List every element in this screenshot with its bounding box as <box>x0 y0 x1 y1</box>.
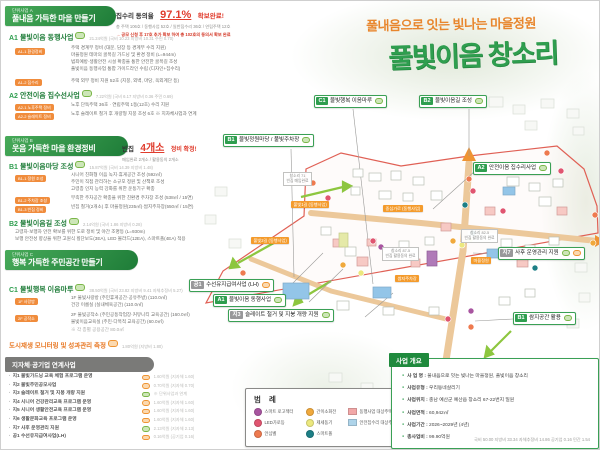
subproject-details: 1F 물빛사랑방 (주민휴게공간·공유주방) (110.0㎡) 건강 이룸실 (… <box>71 295 167 309</box>
budget-badge-icon <box>142 435 150 441</box>
project-title: 물빛이음길 조성 <box>20 221 67 228</box>
subproject-details: 부족한 주차공간 확충을 위한 친환경 주차장 조성 (538㎡ / 15면) <box>71 195 193 202</box>
monitoring-title: 도시재생 모니터링 및 성과관리 측정 <box>9 343 106 350</box>
legend-item: 동행사업 대상주택 <box>348 408 392 415</box>
linked-item: 지6 생활문화교육 프로그램 운영1.60억원 (지자체 1.60) <box>9 416 194 425</box>
project-title: 물빛이음마당 조성 <box>20 164 73 171</box>
legend-item: 안심벨 <box>254 430 276 438</box>
linked-item: 지5 시니어 생활안전교육 프로그램 운영1.60억원 (지자체 1.60) <box>9 407 194 416</box>
legend-item: LED가로등 <box>254 419 285 427</box>
section-b-title: 웃음 가득한 마을 환경정비 <box>12 144 120 153</box>
budget-badge-icon <box>142 383 150 389</box>
linked-projects-list: 지1 물빛가드닝 교육 체험 프로그램 운영1.60억원 (지자체 1.60) … <box>9 373 194 442</box>
floor-footnote: ※ 각 층별 공용공간 80.0㎡ <box>71 327 124 334</box>
project-code: C1 <box>9 287 18 294</box>
map-label-a2: A2안전이음 집수리사업 <box>473 162 551 175</box>
road-label: 풀빛2길 (동행사업) <box>251 237 289 244</box>
budget-badge-icon <box>75 284 85 291</box>
project-overview-box: 사업 개요 사 업 명풀내음으로 잇는 빛나는 마을정원, 풀빛이음 창소리 사… <box>391 358 599 449</box>
linked-projects-header: 지자체·공기업 연계사업 <box>5 357 154 372</box>
smart-pole-icon <box>306 430 314 438</box>
poster-title: 풀빛이음 창소리 <box>348 30 597 78</box>
detail-line: 빈집 철거(2개소) 후 마을정원(235㎡)·쌈지주차장(550㎡ / 15면… <box>71 204 193 211</box>
legend-box: 범 례 스마트 로고젝터 LED가로등 안심벨 간이소화전 제세동기 스마트폴 … <box>245 388 397 447</box>
budget-badge-icon <box>142 409 150 415</box>
subproject-tag: A1-2 집수리 <box>15 79 42 86</box>
detail-line: 보행 안전성 향상을 위한 고원식 횡단보도(3EA), LED 볼라드(12E… <box>15 236 186 243</box>
subproject-details: 빈집 철거(2개소) 후 마을정원(235㎡)·쌈지주차장(550㎡ / 15면… <box>71 204 193 211</box>
donghaeng-house-icon <box>348 408 357 415</box>
map-label-c1: C1물빛행복 이음마루 <box>314 95 387 108</box>
project-code: A2 <box>9 93 18 100</box>
project-c1-row: C1물빛행복 이음마루38.50억원 (국비 23.82 지방비 9.41 자체… <box>9 284 183 295</box>
subproject-tag: A2-2 슬레이트 정비 <box>15 113 54 120</box>
budget-badge-icon <box>142 392 150 398</box>
subproject-tag: 2F 공작소 <box>15 315 38 322</box>
project-code: B2 <box>9 221 18 228</box>
subproject-tag: B1-3 빈집 정비 <box>15 206 46 213</box>
facility-label: 마을정원 <box>471 257 491 264</box>
notice-suffix: 정비 확정! <box>171 147 197 153</box>
subproject-details: 노후 단독주택 36호 · 연립주택 1동(12호) 수리 지원 <box>71 102 169 109</box>
linked-item: 지7 사후 운영관리 지원2.13억원 (지자체 2.13) <box>9 425 194 434</box>
road-label: 중심가로 (동행사업) <box>383 205 423 212</box>
subproject-tag: B1-2 주차장 조성 <box>15 197 50 204</box>
section-a-tag: 단위사업 A <box>12 8 108 14</box>
notice-label: 빈집 <box>122 146 134 153</box>
overview-title: 사업 개요 <box>389 353 429 367</box>
linked-item: 지2 물빛주민공모사업0.70억원 (지자체 0.70) <box>9 382 194 391</box>
map-label-j3: 지3슬레이트 철거 및 지붕 개량 지원 <box>228 309 334 322</box>
notice-extra: → 공모 신청 후 17호 추가 확보 하여 총 102호의 동의서 확보 완료 <box>116 32 231 38</box>
badge-icon <box>564 315 572 321</box>
linked-item: 지4 시니어 건강관리교육 프로그램 운영1.60억원 (지자체 1.60) <box>9 399 194 408</box>
map-label-b1b: B1쌈지공간 활용 <box>513 312 576 325</box>
budget-badge-icon <box>142 418 150 424</box>
map-label-g1: 공1수선유지급여사업 (LH) <box>189 279 274 292</box>
section-c-tag: 단위사업 C <box>12 252 130 258</box>
safety-bell-icon <box>254 430 262 438</box>
badge-icon <box>322 312 330 318</box>
community-center-building <box>427 251 437 266</box>
vacant-note: 창소리 82-5빈집 활용동의 완료 <box>461 229 498 243</box>
linked-item: 지1 물빛가드닝 교육 체험 프로그램 운영1.60억원 (지자체 1.60) <box>9 373 194 382</box>
detail-line: 2F 물빛공작소 (주민공동작업장·커뮤니티 교육공간) (160.0㎡) <box>71 312 190 319</box>
detail-line: 주택 경계부 정비 (대문, 담장 등 경계부 수리 지원) <box>71 45 180 52</box>
section-a-title: 풀내음 가득한 마을 만들기 <box>12 14 108 23</box>
project-budget: 7.22억원 (국비 6.17 지방비 0.36 주민 0.69) <box>96 94 173 99</box>
subproject-details: 노후 슬레이트 철거 후 개량형 지붕 조성 6호 ※ 지자체사업과 연계 <box>71 111 197 118</box>
badge-icon <box>539 165 547 171</box>
garden-parcel <box>339 233 348 247</box>
budget-badge-icon <box>75 161 85 168</box>
legend-title: 범 례 <box>254 394 279 405</box>
subproject-tag: B1-1 정원 조성 <box>15 175 46 182</box>
legend-item: 스마트 로고젝터 <box>254 408 293 416</box>
project-title: 안전이음 집수선사업 <box>20 93 80 100</box>
subproject-details: 2F 물빛공작소 (주민공동작업장·커뮤니티 교육공간) (160.0㎡) 물빛… <box>71 312 190 326</box>
detail-line: 주택 외부 정비 지원 52호 (지붕, 외벽, 마당, 옥외계단 등) <box>71 78 179 85</box>
map-label-b1: B1물빛정원마당 / 풀빛주차장 <box>223 134 314 147</box>
project-budget: 2.14억원 (국비 1.86 지방비 0.28) <box>83 222 142 227</box>
project-code: A1 <box>9 35 18 42</box>
budget-badge-icon <box>142 426 150 432</box>
subproject-tag: A2-1 노후주택 정비 <box>15 104 54 111</box>
detail-line: 풀빛이음 동행사업 통합 가이드라인 수립 (디자인+집수리) <box>71 66 180 73</box>
poster-page: 풀내음으로 잇는 빛나는 마을정원 풀빛이음 창소리 단위사업 A 풀내음 가득… <box>0 0 600 450</box>
detail-line: 노후 슬레이트 철거 후 개량형 지붕 조성 6호 ※ 지자체사업과 연계 <box>71 111 197 118</box>
repair-consent-notice: 집수리 동의율 97.1% 확보완료! 총 주택 106호 / 동행사업 52호… <box>116 5 231 38</box>
badge-icon <box>475 98 483 104</box>
linked-item: 공1 수선유지급여사업(LH)0.16억원 (공기업 0.16) <box>9 433 194 442</box>
detail-line: 주민이 직접 관리하는 소규모 정원 및 산책로 조성 <box>71 179 164 186</box>
badge-icon <box>262 282 270 288</box>
overview-row: 사업위치충남 예산군 예산읍 창소리 67-22번지 일원 <box>402 394 528 406</box>
project-title: 물빛행복 이음마루 <box>20 287 73 294</box>
badge-icon <box>302 137 310 143</box>
road-label: 풀빛1길 (동행사업) <box>291 201 329 208</box>
linked-item: 지3 슬레이트 철거 및 지붕 개량 지원※ 단위사업과 연계 <box>9 390 194 399</box>
budget-badge-icon <box>69 218 79 225</box>
badge-icon <box>562 250 570 256</box>
detail-line: 마을정원 테마의 골목길 가드닝 및 환경 정비 (L=944m) <box>71 52 180 59</box>
subproject-details: 시니어 친화형 이음 녹지·휴게공간 조성 (592㎡) 주민이 직접 관리하는… <box>71 172 164 193</box>
defibrillator-icon <box>306 419 314 427</box>
notice-value: 4개소 <box>140 143 164 154</box>
budget-badge-icon <box>142 375 150 381</box>
budget-badge-icon <box>142 400 150 406</box>
legend-item: 간이소화전 <box>306 408 336 416</box>
legend-item: 제세동기 <box>306 419 332 427</box>
overview-row: 사 업 명풀내음으로 잇는 빛나는 마을정원, 풀빛이음 창소리 <box>402 370 528 382</box>
notice-suffix: 확보완료! <box>198 13 224 20</box>
overview-rows: 사 업 명풀내음으로 잇는 빛나는 마을정원, 풀빛이음 창소리 사업유형우리동… <box>402 370 528 443</box>
detail-line: 고령층 인지 능력 강화를 위한 운동기구 확충 <box>71 186 164 193</box>
project-budget: 15.87억원 (국비 14.39 지방비 1.48) <box>89 165 153 170</box>
repair-house-icon <box>348 419 357 426</box>
badge-icon <box>375 98 383 104</box>
detail-line: 시니어 친화형 이음 녹지·휴게공간 조성 (592㎡) <box>71 172 164 179</box>
notice-label: 집수리 동의율 <box>116 13 154 20</box>
facility-label: 쌈지주차장 <box>395 275 419 282</box>
subproject-tag: A1-1 환경정비 <box>15 48 45 55</box>
budget-badge-icon <box>108 340 118 347</box>
vacant-note: 창소리 71빈집 매입완료 <box>283 172 312 186</box>
overview-row: 사업기간2026~2029년 (4년) <box>402 419 528 431</box>
detail-line: 물빛이음교육실 (주민·다목적 교육공간) (60.0㎡) <box>71 319 190 326</box>
section-c-title: 행복 가득한 주민공간 만들기 <box>12 258 130 267</box>
badge-icon <box>274 297 282 303</box>
legend-item: 스마트폴 <box>306 430 332 438</box>
overview-row: 사업면적60,942㎡ <box>402 407 528 419</box>
subproject-details: 고령자·보행자 안전 확보를 위한 도로 정비 및 야간 조명등 (L=930m… <box>15 229 186 243</box>
map-label-j7: 지7사후 운영관리 지원 <box>498 247 585 260</box>
detail-line: 범죄예방·생활안전 시설 확충을 통한 안전한 골목길 조성 <box>71 59 180 66</box>
map-label-b2: B2물빛이음길 조성 <box>419 95 487 108</box>
section-b-header: 단위사업 B 웃음 가득한 마을 환경정비 <box>5 136 128 156</box>
detail-line: 노후 단독주택 36호 · 연립주택 1동(12호) 수리 지원 <box>71 102 169 109</box>
fire-hydrant-icon <box>306 408 314 416</box>
monitoring-budget: 1.80억원 (지방비 1.80) <box>122 344 163 349</box>
detail-line: 건강 이룸실 (실내체육공간) (110.0㎡) <box>71 302 167 309</box>
overview-budget-breakdown: 국비 50.00 지방비 33.34 자체추정비 14.86 공기업 0.16 … <box>474 437 590 443</box>
subproject-tag: 1F 사랑방 <box>15 298 38 305</box>
map-label-a1: A1물빛이음 동행사업 <box>213 294 286 307</box>
detail-line: 1F 물빛사랑방 (주민휴게공간·공유주방) (110.0㎡) <box>71 295 167 302</box>
budget-badge-icon <box>75 32 85 39</box>
overview-row: 사업유형우리동네살리기 <box>402 382 528 394</box>
detail-line: 부족한 주차공간 확충을 위한 친환경 주차장 조성 (538㎡ / 15면) <box>71 195 193 202</box>
project-code: B1 <box>9 164 18 171</box>
legend-item: 안전집수리 대상주택 <box>348 419 396 426</box>
notice-value: 97.1% <box>160 9 191 21</box>
led-streetlight-icon <box>254 419 262 427</box>
subproject-details: 주택 경계부 정비 (대문, 담장 등 경계부 수리 지원) 마을정원 테마의 … <box>71 45 180 73</box>
section-a-header: 단위사업 A 풀내음 가득한 마을 만들기 <box>5 6 116 26</box>
subproject-details: 주택 외부 정비 지원 52호 (지붕, 외벽, 마당, 옥외계단 등) <box>71 78 179 85</box>
notice-detail: 총 주택 106호 / 동행사업 52호 / 일반집수리 36호 / 연립주택 … <box>116 24 231 30</box>
monitoring-row: 도시재생 모니터링 및 성과관리 측정1.80억원 (지방비 1.80) <box>9 340 163 351</box>
project-title: 물빛이음 동행사업 <box>20 35 73 42</box>
badge-icon <box>573 250 581 256</box>
smart-projector-icon <box>254 408 262 416</box>
section-c-header: 단위사업 C 행복 가득한 주민공간 만들기 <box>5 250 138 270</box>
vacant-note: 창소리 87-5빈집 활용동의 완료 <box>382 247 419 261</box>
vacant-house-notice: 빈집 4개소 정비 확정! 매입완료 2개소 / 활용동의 2개소 <box>122 138 197 163</box>
project-b2-row: B2물빛이음길 조성2.14억원 (국비 1.86 지방비 0.28) <box>9 218 142 229</box>
section-b-tag: 단위사업 B <box>12 138 120 144</box>
detail-line: 고령자·보행자 안전 확보를 위한 도로 정비 및 야간 조명등 (L=930m… <box>15 229 186 236</box>
budget-badge-icon <box>82 90 92 97</box>
project-budget: 38.50억원 (국비 23.82 지방비 9.41 자체추정비 5.27) <box>89 288 182 293</box>
project-a2-row: A2안전이음 집수선사업7.22억원 (국비 6.17 지방비 0.36 주민 … <box>9 90 173 101</box>
notice-detail: 매입완료 2개소 / 활용동의 2개소 <box>122 157 197 163</box>
